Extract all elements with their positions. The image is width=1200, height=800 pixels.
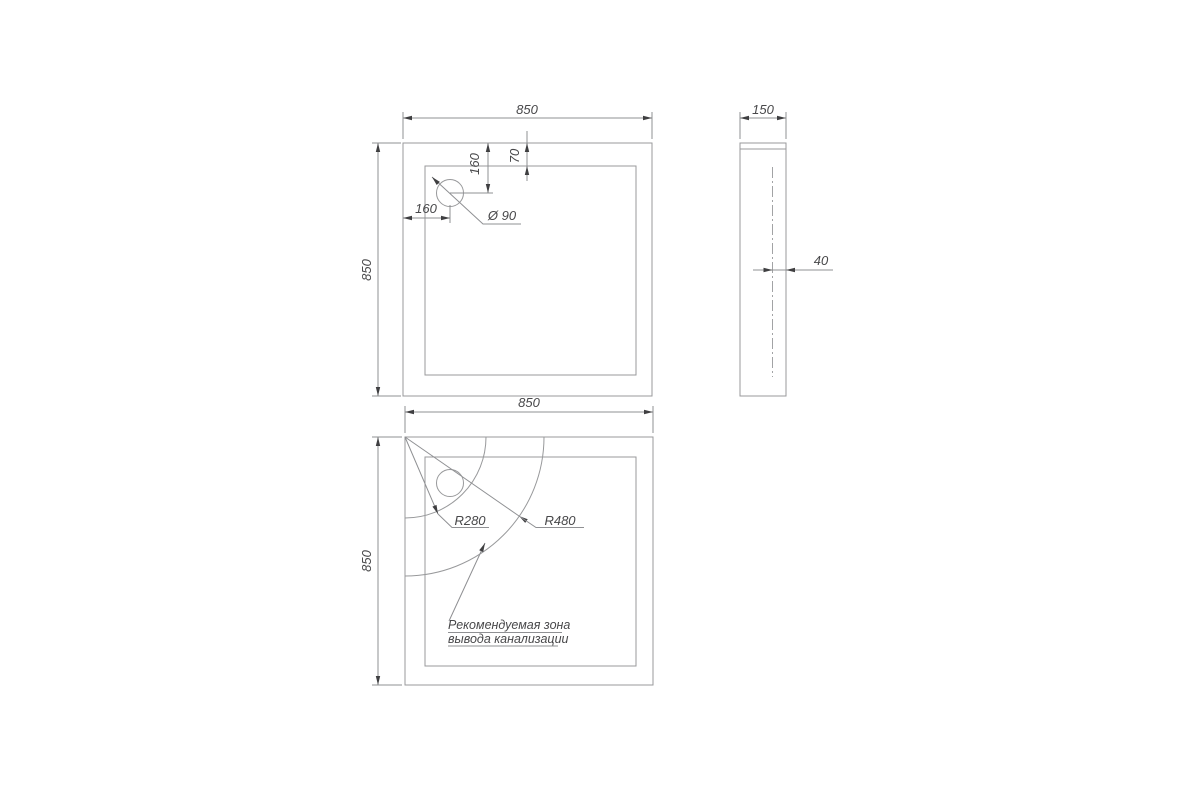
plan-dim-drain-top-label: 160 [467, 152, 482, 174]
zone-dim-width: 850 [405, 395, 653, 433]
zone-dim-radius-inner-label: R280 [454, 513, 486, 528]
plan-inner-edge [425, 166, 636, 375]
side-dim-drain-offset: 40 [753, 253, 833, 272]
plan-dim-drain-left-label: 160 [415, 201, 437, 216]
plan-dim-drain-diameter-label: Ø 90 [487, 208, 517, 223]
plan-dim-height-label: 850 [359, 258, 374, 280]
plan-dim-rim: 70 [507, 131, 529, 181]
zone-drain-hole [437, 470, 464, 497]
zone-dim-height-label: 850 [359, 549, 374, 571]
drain-zone-view: 850 850 R280 R480 Рекомендуе [359, 395, 653, 685]
zone-dim-radius-outer: R480 [405, 437, 584, 528]
plan-dim-rim-label: 70 [507, 148, 522, 163]
side-view: 150 40 [740, 102, 833, 396]
side-dim-drain-offset-label: 40 [814, 253, 829, 268]
plan-view: 850 850 70 160 160 [359, 102, 652, 396]
zone-dim-width-label: 850 [518, 395, 540, 410]
zone-dim-radius-outer-label: R480 [544, 513, 576, 528]
plan-dim-width-label: 850 [516, 102, 538, 117]
side-dim-width-label: 150 [752, 102, 774, 117]
recommended-zone-hatch [405, 437, 544, 576]
technical-drawing-canvas: 850 850 70 160 160 [0, 0, 1200, 800]
technical-drawing-page: 850 850 70 160 160 [0, 0, 1200, 800]
zone-note: Рекомендуемая зона вывода канализации [448, 543, 570, 646]
plan-dim-height: 850 [359, 143, 401, 396]
plan-dim-drain-top: 160 [450, 143, 493, 193]
zone-dim-height: 850 [359, 437, 402, 685]
zone-note-line1: Рекомендуемая зона [448, 618, 570, 632]
zone-dim-radius-inner: R280 [405, 437, 490, 528]
zone-note-line2: вывода канализации [448, 632, 569, 646]
zone-outer-edge [405, 437, 653, 685]
side-dim-width: 150 [740, 102, 786, 139]
